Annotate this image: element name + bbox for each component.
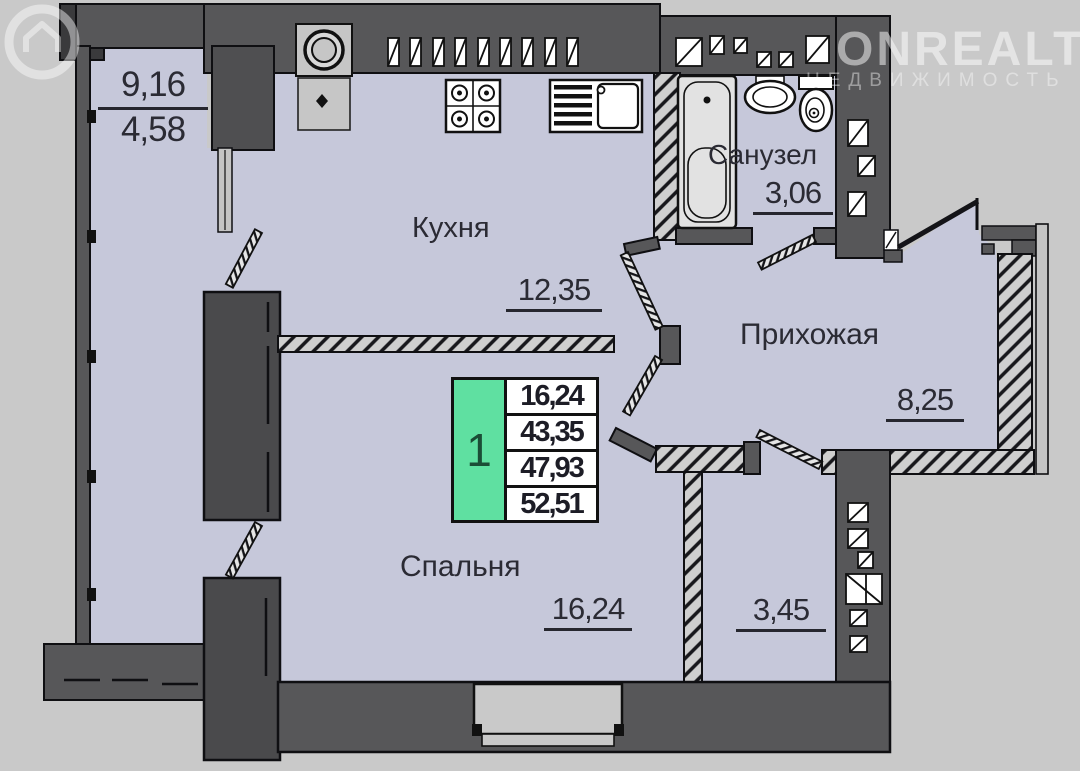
kitchen-wall-hatch-row [388, 38, 578, 66]
bedroom-area-label: 16,24 [544, 591, 632, 631]
kitchen-area-label: 12,35 [506, 272, 602, 312]
bathroom-area-label: 3,06 [753, 175, 833, 215]
bathroom-name-label: Санузел [708, 139, 817, 171]
hallway-name-label: Прихожая [740, 318, 879, 352]
onrealt-logo-icon [0, 0, 84, 84]
apartment-legend-table: 1 16,24 43,35 47,93 52,51 [451, 377, 599, 523]
watermark-brand: ONREALT [836, 22, 1080, 77]
stove-icon [446, 80, 500, 132]
storage-area-label: 3,45 [736, 592, 826, 632]
kitchen-panel-icon [298, 78, 350, 130]
kitchen-name-label: Кухня [412, 212, 490, 245]
bedroom-name-label: Спальня [400, 550, 521, 584]
legend-values: 16,24 43,35 47,93 52,51 [507, 380, 596, 520]
balcony-area-label: 9,16 4,58 [98, 66, 208, 149]
floor-plan-page: 9,16 4,58 Кухня 12,35 Санузел 3,06 Прихо… [0, 0, 1080, 771]
balcony-area-full: 9,16 [98, 66, 208, 105]
legend-row: 16,24 [507, 380, 596, 416]
legend-row: 52,51 [507, 488, 596, 521]
legend-row: 43,35 [507, 416, 596, 452]
kitchen-sink-icon [550, 80, 642, 132]
hallway-area-label: 8,25 [886, 382, 964, 422]
balcony-area-reduced: 4,58 [98, 111, 208, 150]
watermark-tagline: НЕДВИЖИМОСТЬ [806, 70, 1067, 92]
bedroom-window [472, 684, 624, 746]
legend-unit-number: 1 [454, 380, 507, 520]
legend-row: 47,93 [507, 452, 596, 488]
boiler-icon [296, 24, 352, 76]
